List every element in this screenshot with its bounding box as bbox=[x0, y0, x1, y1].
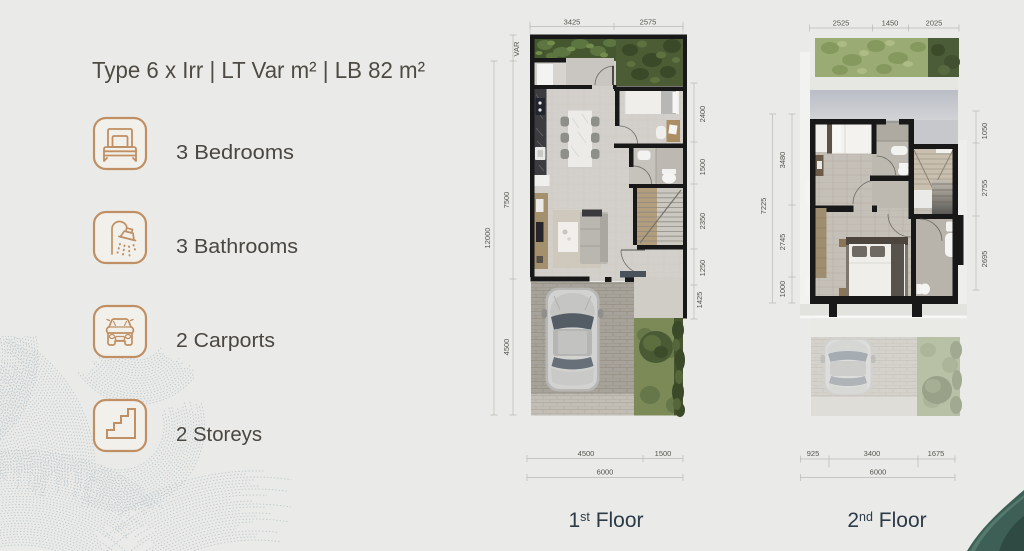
svg-text:3 Bedrooms: 3 Bedrooms bbox=[176, 142, 294, 164]
svg-text:1450: 1450 bbox=[882, 19, 899, 28]
svg-text:2525: 2525 bbox=[833, 19, 850, 28]
svg-text:2575: 2575 bbox=[640, 18, 657, 27]
svg-text:2025: 2025 bbox=[926, 19, 943, 28]
svg-text:4500: 4500 bbox=[502, 339, 511, 356]
svg-text:6000: 6000 bbox=[597, 468, 614, 477]
svg-text:6000: 6000 bbox=[870, 468, 887, 477]
svg-text:925: 925 bbox=[807, 449, 820, 458]
svg-text:7225: 7225 bbox=[759, 198, 768, 215]
svg-text:3 Bathrooms: 3 Bathrooms bbox=[176, 236, 298, 258]
svg-text:7500: 7500 bbox=[502, 192, 511, 209]
svg-text:3400: 3400 bbox=[864, 449, 881, 458]
svg-text:2695: 2695 bbox=[980, 251, 989, 268]
svg-text:3480: 3480 bbox=[778, 152, 787, 169]
svg-text:1500: 1500 bbox=[698, 159, 707, 176]
svg-text:2 Carports: 2 Carports bbox=[176, 330, 275, 352]
svg-text:1425: 1425 bbox=[695, 292, 704, 309]
svg-text:3425: 3425 bbox=[564, 18, 581, 27]
svg-text:2400: 2400 bbox=[698, 106, 707, 123]
svg-text:1500: 1500 bbox=[655, 449, 672, 458]
svg-text:2 Storeys: 2 Storeys bbox=[176, 424, 262, 446]
svg-text:2745: 2745 bbox=[778, 234, 787, 251]
svg-text:2755: 2755 bbox=[980, 180, 989, 197]
svg-text:1st Floor: 1st Floor bbox=[568, 509, 643, 532]
svg-text:12000: 12000 bbox=[483, 228, 492, 249]
svg-text:1675: 1675 bbox=[928, 449, 945, 458]
svg-text:4500: 4500 bbox=[578, 449, 595, 458]
svg-text:1000: 1000 bbox=[778, 281, 787, 298]
svg-text:VAR: VAR bbox=[512, 41, 521, 56]
svg-text:Type 6 x Irr | LT Var m² |: Type 6 x Irr | LT Var m² | LB 82 m² bbox=[92, 57, 425, 83]
svg-text:1250: 1250 bbox=[698, 260, 707, 277]
svg-text:2350: 2350 bbox=[698, 213, 707, 230]
svg-text:1050: 1050 bbox=[980, 123, 989, 140]
